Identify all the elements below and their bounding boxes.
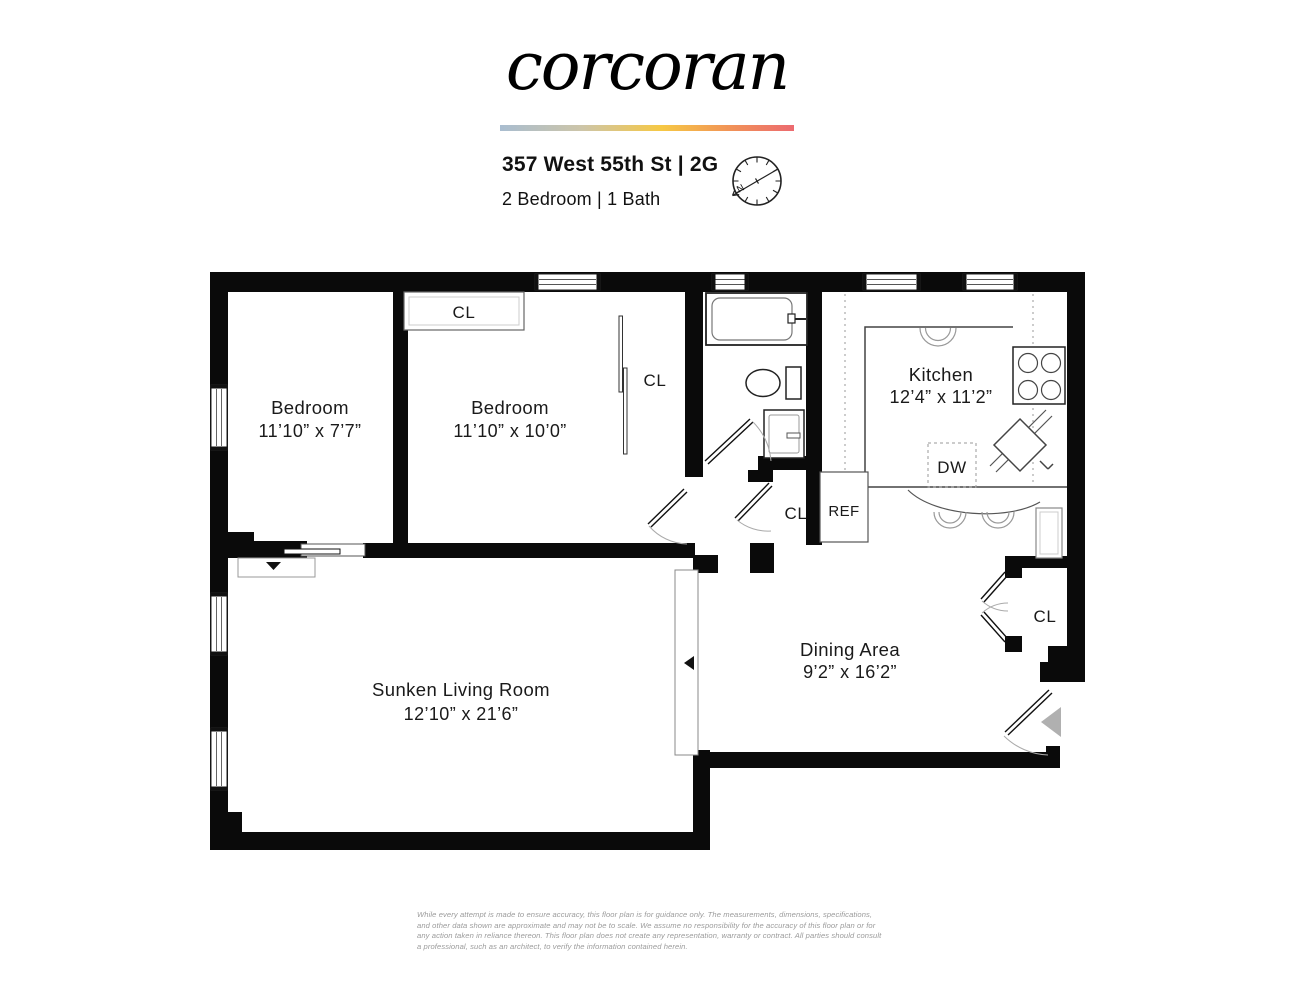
living-room-label: Sunken Living Room <box>372 679 550 700</box>
hall-cl-door-leaf <box>735 483 772 521</box>
window <box>535 274 600 290</box>
counter-curved-edge <box>908 490 1040 514</box>
living-room-dimensions: 12’10” x 21’6” <box>404 704 519 724</box>
window <box>863 274 920 290</box>
wall-segment <box>363 543 695 558</box>
bathtub <box>706 293 807 345</box>
kitchen-counters <box>845 294 1067 558</box>
wall-segment <box>748 470 773 482</box>
refrigerator-label: REF <box>828 503 859 520</box>
toilet <box>746 367 801 399</box>
wall-segment <box>685 292 703 477</box>
wall-segment <box>1046 746 1060 768</box>
wall-segment <box>210 832 710 850</box>
disclaimer-text: While every attempt is made to ensure ac… <box>417 910 885 952</box>
windows <box>211 274 1017 790</box>
window <box>712 274 748 290</box>
bathroom-door-leaf <box>705 419 753 464</box>
bedroom1-dimensions: 11’10” x 7’7” <box>259 421 362 441</box>
window <box>211 593 227 655</box>
entry-door-leaf <box>1005 690 1052 735</box>
kitchen-sink-arc <box>920 328 956 346</box>
wall-segment <box>750 543 774 573</box>
wall-segment <box>1040 662 1085 682</box>
corner-sink <box>994 419 1053 471</box>
dining-area-dimensions: 9’2” x 16’2” <box>803 662 897 682</box>
wall-segment <box>693 750 710 850</box>
closet-label: CL <box>1034 607 1057 626</box>
closet-label: CL <box>644 371 667 390</box>
hall-closet-sliding-doors <box>619 316 627 454</box>
floor-plan: Bedroom 11’10” x 7’7” Bedroom 11’10” x 1… <box>0 0 1294 1000</box>
wall-segment <box>228 532 254 543</box>
counter-stools <box>934 512 1014 528</box>
window <box>211 728 227 790</box>
bedroom2-door-leaf <box>648 489 687 527</box>
bedroom2-dimensions: 11’10” x 10’0” <box>453 421 566 441</box>
closet-label: CL <box>785 504 808 523</box>
bathroom-sink-vanity <box>764 410 804 458</box>
bedroom1-label: Bedroom <box>271 397 349 418</box>
entry-arrow <box>1041 707 1061 737</box>
window <box>963 274 1017 290</box>
window <box>211 385 227 450</box>
room-labels: Bedroom 11’10” x 7’7” Bedroom 11’10” x 1… <box>259 303 1057 724</box>
bedroom2-label: Bedroom <box>471 397 549 418</box>
walls <box>210 272 1085 850</box>
dining-cl-door-leaves <box>981 572 1008 642</box>
kitchen-label: Kitchen <box>909 364 974 385</box>
stove <box>1013 347 1065 404</box>
wall-segment <box>1067 272 1085 682</box>
dishwasher-label: DW <box>937 458 967 477</box>
wall-segment <box>210 272 1085 292</box>
wall-segment <box>695 752 1060 768</box>
floor-plan-page: corcoran 357 West 55th St | 2G 2 Bedroom… <box>0 0 1294 1000</box>
dining-area-label: Dining Area <box>800 639 900 660</box>
step-down-marker <box>238 558 315 577</box>
kitchen-dimensions: 12’4” x 11’2” <box>890 387 993 407</box>
doors <box>648 419 1052 735</box>
wall-segment <box>1048 646 1085 664</box>
closet-label: CL <box>453 303 476 322</box>
sunken-step-edge <box>675 570 698 755</box>
